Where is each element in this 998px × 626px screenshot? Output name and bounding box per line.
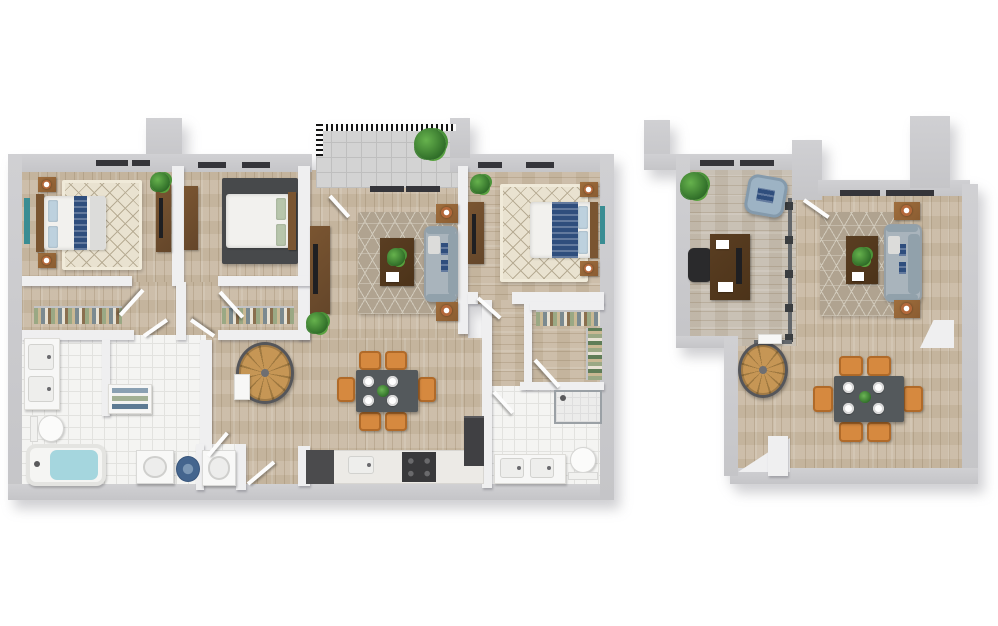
loft-lamp-icon bbox=[901, 303, 912, 314]
plate-icon bbox=[873, 403, 884, 414]
office-plant bbox=[680, 172, 708, 200]
loft-coffee-table-plant bbox=[852, 247, 871, 266]
loft-entry-stair-wall bbox=[768, 436, 788, 476]
loft-dining-chair bbox=[867, 422, 891, 442]
railing-post-icon bbox=[785, 202, 793, 210]
loft-dining-chair bbox=[867, 356, 891, 376]
loft-spiral-landing bbox=[758, 334, 782, 344]
desk-paper bbox=[716, 240, 729, 249]
railing-post-icon bbox=[785, 304, 793, 312]
loft-living-window bbox=[840, 190, 880, 196]
loft-dining-chair bbox=[839, 356, 863, 376]
loft-coffee-table-book bbox=[852, 272, 864, 281]
office-window-2 bbox=[740, 160, 774, 166]
loft-dining-chair bbox=[903, 386, 923, 412]
loft-wall-right bbox=[962, 184, 978, 476]
loft-sofa-pillow bbox=[899, 262, 906, 274]
loft-spiral-staircase bbox=[738, 342, 788, 398]
office-window bbox=[700, 160, 734, 166]
loft-wall-lower-left bbox=[724, 336, 738, 476]
loft-dining-chair bbox=[813, 386, 833, 412]
loft-living-window-2 bbox=[886, 190, 934, 196]
railing-post-icon bbox=[785, 270, 793, 278]
loft-dining-chair bbox=[839, 422, 863, 442]
office-chair bbox=[688, 248, 712, 282]
armchair-pillow bbox=[756, 188, 775, 204]
loft-lamp-icon bbox=[901, 205, 912, 216]
floorplan-loft-level bbox=[0, 0, 998, 626]
plate-icon bbox=[843, 403, 854, 414]
loft-wall-stub-tr bbox=[910, 116, 950, 188]
monitor-icon bbox=[736, 248, 742, 284]
plate-icon bbox=[873, 382, 884, 393]
loft-sofa-arm bbox=[886, 225, 918, 232]
loft-sofa-pillow bbox=[899, 244, 906, 256]
desk-paper-2 bbox=[718, 282, 733, 292]
floorplan-canvas bbox=[0, 0, 998, 626]
railing-post-icon bbox=[785, 236, 793, 244]
loft-sofa-throw bbox=[888, 236, 900, 254]
centerpiece-plant-icon bbox=[859, 391, 871, 403]
loft-sofa-back bbox=[908, 234, 920, 294]
plate-icon bbox=[843, 382, 854, 393]
